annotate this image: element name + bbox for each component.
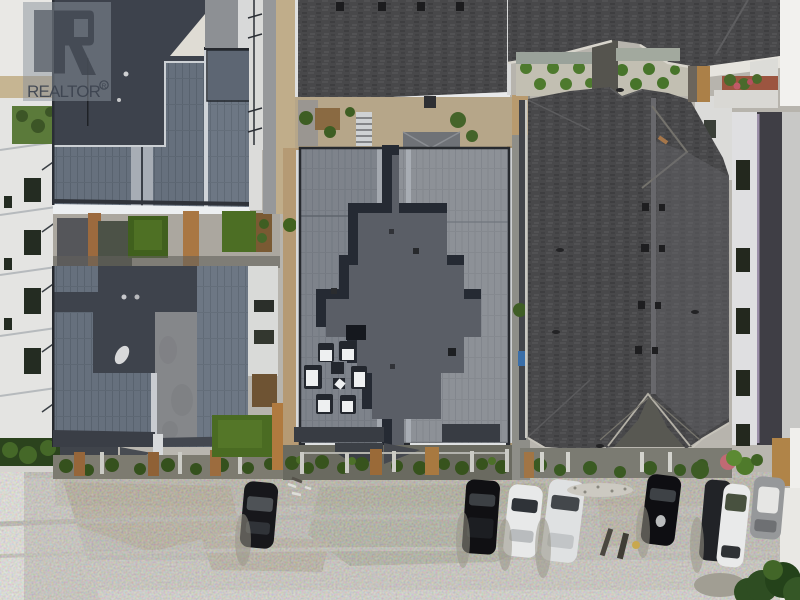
svg-text:REALTOR: REALTOR [27, 82, 101, 101]
svg-text:R: R [102, 83, 107, 90]
